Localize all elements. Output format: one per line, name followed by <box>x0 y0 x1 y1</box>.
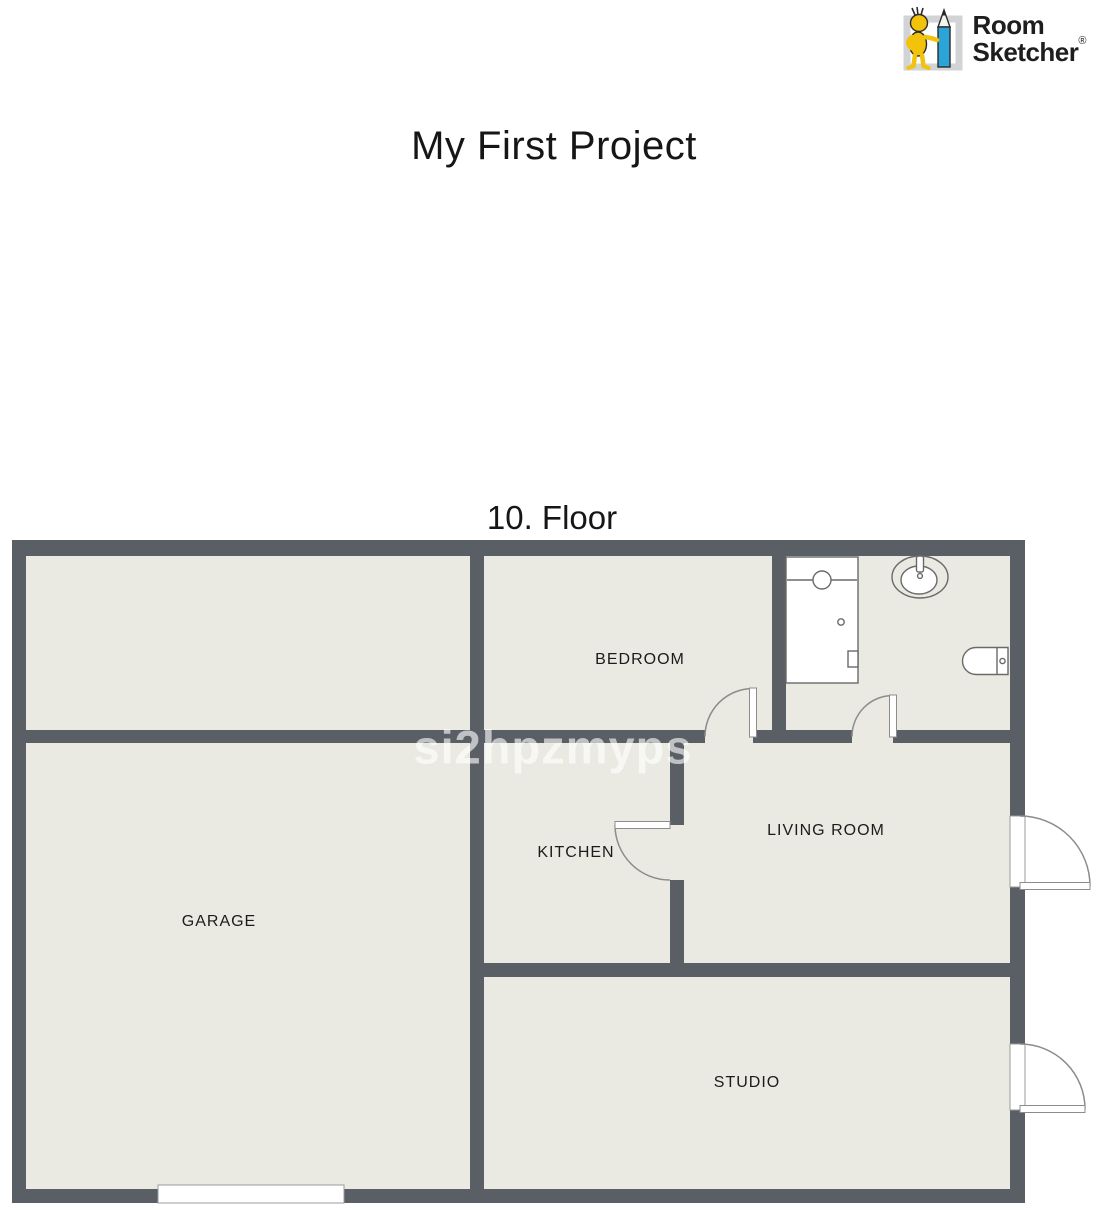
logo-wordmark: Room Sketcher® <box>973 12 1086 65</box>
room-label-living-room: LIVING ROOM <box>767 822 885 840</box>
studio-door-opening <box>1010 1044 1025 1110</box>
logo-line1: Room <box>973 12 1086 39</box>
pencil-shaft <box>938 27 950 67</box>
garage-floor <box>26 743 470 1189</box>
room-label-kitchen: KITCHEN <box>537 844 614 862</box>
living-room-exterior-door <box>1020 816 1090 890</box>
watermark: si2hpzmyps <box>413 720 692 775</box>
floorplan-drawing <box>0 0 1104 1210</box>
figure-head <box>910 15 927 32</box>
bedroom-floor <box>484 556 772 730</box>
shower <box>786 557 858 683</box>
living-room-door-opening <box>1010 816 1025 887</box>
room-label-bedroom: BEDROOM <box>595 651 685 669</box>
sink <box>892 556 948 598</box>
bathroom-door-opening <box>852 730 893 743</box>
roomsketcher-logo: Room Sketcher® <box>902 6 1086 74</box>
bedroom-door-opening <box>705 730 753 743</box>
top-left-room-floor <box>26 556 470 730</box>
living-room-floor <box>684 743 1010 963</box>
figure-arm-right <box>925 37 937 40</box>
floor-label: 10. Floor <box>487 499 617 537</box>
roomsketcher-icon <box>902 6 966 74</box>
logo-line2: Sketcher® <box>973 39 1086 66</box>
studio-exterior-door <box>1020 1044 1085 1113</box>
floorplan-page: My First Project 10. Floor Room Sketcher… <box>0 0 1104 1210</box>
room-floors <box>26 556 1010 1189</box>
page-title: My First Project <box>411 124 697 169</box>
room-label-studio: STUDIO <box>714 1074 780 1092</box>
registered-mark: ® <box>1078 35 1086 47</box>
room-label-garage: GARAGE <box>182 913 256 931</box>
kitchen-door-opening <box>670 825 684 880</box>
toilet <box>963 648 1009 675</box>
figure-hair <box>912 7 923 15</box>
garage-opening <box>158 1185 344 1203</box>
